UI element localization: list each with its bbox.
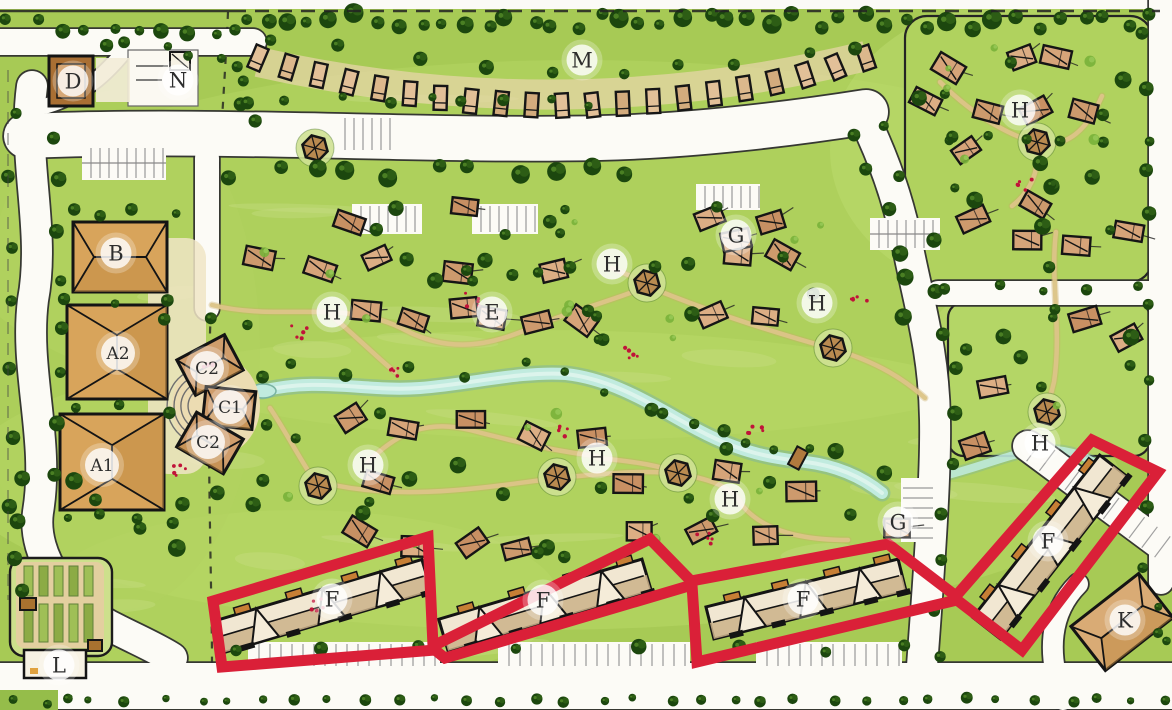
area-label-h-15: H [348, 445, 389, 486]
area-label-k-24: K [1105, 600, 1146, 641]
area-label-a1-5: A1 [80, 443, 124, 487]
svg-text:F: F [536, 589, 551, 613]
svg-text:F: F [1041, 530, 1056, 554]
svg-text:F: F [796, 588, 811, 612]
area-label-f-20: F [312, 579, 353, 620]
area-label-h-17: H [710, 479, 751, 520]
svg-text:H: H [588, 447, 606, 471]
svg-text:H: H [1011, 99, 1029, 123]
area-label-l-25: L [39, 645, 80, 686]
area-label-f-22: F [783, 579, 824, 620]
svg-text:H: H [359, 454, 377, 478]
svg-text:N: N [169, 69, 187, 93]
area-label-h-14: H [1000, 90, 1041, 131]
svg-text:L: L [52, 654, 66, 678]
svg-text:K: K [1117, 609, 1133, 633]
area-label-c2-8: C2 [186, 420, 230, 464]
svg-text:B: B [108, 242, 123, 266]
pavilion-icon [538, 458, 576, 496]
svg-text:A1: A1 [89, 456, 113, 476]
svg-text:G: G [728, 224, 745, 248]
area-label-c2-6: C2 [185, 346, 229, 390]
site-plan-canvas: DNMBA2A1C2C1C2EHHGHHHHHGHFFFFKL [0, 0, 1172, 710]
area-label-n-1: N [158, 60, 199, 101]
pavilion-icon [299, 467, 337, 505]
svg-text:H: H [323, 301, 341, 325]
svg-text:F: F [325, 588, 340, 612]
area-label-h-13: H [797, 283, 838, 324]
area-label-f-23: F [1028, 521, 1069, 562]
svg-text:H: H [808, 292, 826, 316]
svg-text:E: E [484, 301, 499, 325]
pavilion-icon [814, 329, 852, 367]
area-label-h-10: H [312, 292, 353, 333]
svg-text:C2: C2 [196, 433, 220, 453]
svg-text:C2: C2 [195, 359, 219, 379]
svg-text:C1: C1 [218, 398, 242, 418]
pavilion-icon [659, 454, 697, 492]
svg-text:D: D [65, 70, 82, 94]
area-label-g-18: G [878, 502, 919, 543]
svg-text:H: H [1031, 432, 1049, 456]
area-label-b-3: B [96, 233, 137, 274]
svg-text:H: H [721, 488, 739, 512]
area-label-m-2: M [562, 40, 603, 81]
svg-text:H: H [603, 253, 621, 277]
area-label-d-0: D [53, 61, 94, 102]
svg-text:A2: A2 [105, 344, 129, 364]
svg-text:M: M [571, 49, 593, 73]
svg-text:G: G [890, 511, 907, 535]
area-label-f-21: F [523, 580, 564, 621]
area-label-e-9: E [472, 292, 513, 333]
area-label-h-19: H [1020, 423, 1061, 464]
area-label-h-16: H [577, 438, 618, 479]
area-label-a2-4: A2 [96, 331, 140, 375]
site-plan: DNMBA2A1C2C1C2EHHGHHHHHGHFFFFKL [0, 0, 1172, 710]
area-label-h-11: H [592, 244, 633, 285]
area-label-g-12: G [716, 215, 757, 256]
